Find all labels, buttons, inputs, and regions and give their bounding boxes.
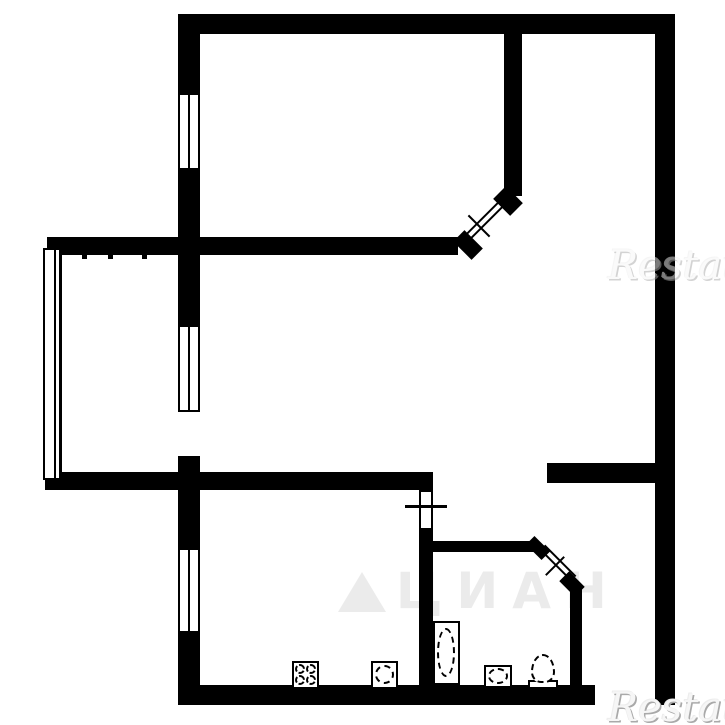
middle-wall: [47, 237, 458, 255]
glazing-mid-line: [54, 250, 56, 478]
bedroom-left-wall-upper: [178, 14, 200, 93]
restate-watermark-bottom: Restate: [608, 688, 725, 725]
bedroom-window-mullion: [188, 95, 190, 168]
right-wall: [655, 14, 675, 705]
bedroom-divider-wall: [504, 34, 522, 196]
toilet-bowl: [531, 654, 555, 683]
balcony-door-wall-upper: [178, 255, 200, 325]
kitchen-door-mark: [405, 505, 447, 508]
stove-burner-1: [295, 664, 305, 674]
stove-burner-3: [295, 675, 305, 685]
kitchen-bath-door-frame: [419, 490, 433, 530]
restate-watermark-middle: Restate: [608, 246, 725, 286]
kitchen-window-mullion: [188, 550, 190, 631]
wall-notch-1: [82, 255, 87, 259]
stove-burner-4: [306, 675, 316, 685]
bedroom-window: [178, 93, 200, 170]
bedroom-door-leaf: [463, 198, 507, 242]
balcony-door-window: [178, 325, 200, 412]
glazing-inner-line: [59, 250, 62, 478]
balcony-glazing: [43, 248, 62, 480]
floor-plan: ЦИАН Restate Restate: [0, 0, 725, 725]
balcony-door-window-mullion: [188, 327, 190, 410]
hall-wall: [547, 463, 675, 483]
lower-left-wall: [45, 472, 433, 490]
bathroom-right-wall: [570, 588, 582, 690]
cian-house-logo-icon: [338, 572, 386, 612]
kitchen-window: [178, 548, 200, 633]
wall-notch-2: [108, 255, 113, 259]
washbasin-bowl: [488, 668, 508, 684]
stove-burner-2: [306, 664, 316, 674]
bathtub-basin: [437, 628, 455, 677]
kitchen-left-wall-upper: [178, 490, 200, 548]
top-wall: [178, 14, 675, 34]
bathroom-top-wall: [430, 541, 535, 552]
kitchen-sink-basin: [375, 665, 394, 684]
kitchen-bath-wall: [419, 530, 433, 690]
wall-notch-3: [142, 255, 147, 259]
